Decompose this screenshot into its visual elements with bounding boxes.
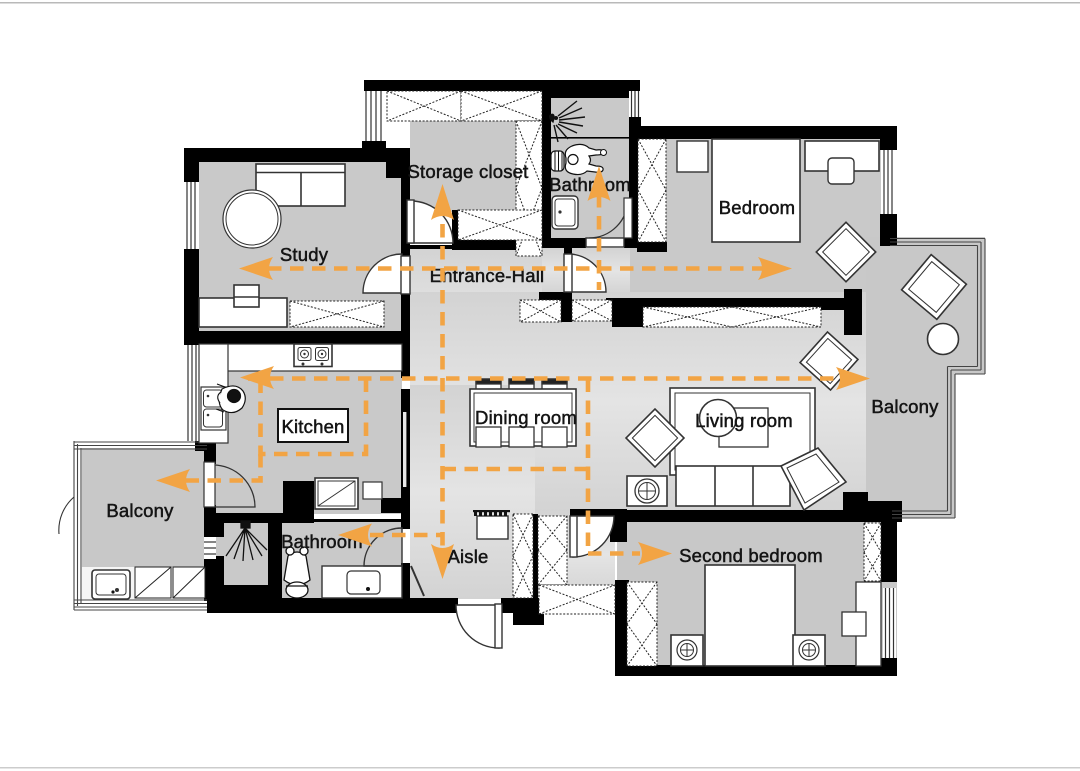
svg-text:Bathroom: Bathroom — [549, 174, 631, 195]
svg-text:Balcony: Balcony — [871, 396, 939, 417]
svg-text:Dining room: Dining room — [475, 407, 577, 428]
svg-text:Aisle: Aisle — [447, 546, 488, 567]
svg-text:Study: Study — [280, 244, 329, 265]
svg-text:Bedroom: Bedroom — [719, 197, 795, 218]
svg-text:Storage closet: Storage closet — [407, 161, 528, 182]
svg-text:Balcony: Balcony — [106, 500, 174, 521]
svg-text:Kitchen: Kitchen — [281, 416, 344, 437]
svg-text:Second bedroom: Second bedroom — [679, 545, 823, 566]
svg-text:Living room: Living room — [695, 410, 793, 431]
